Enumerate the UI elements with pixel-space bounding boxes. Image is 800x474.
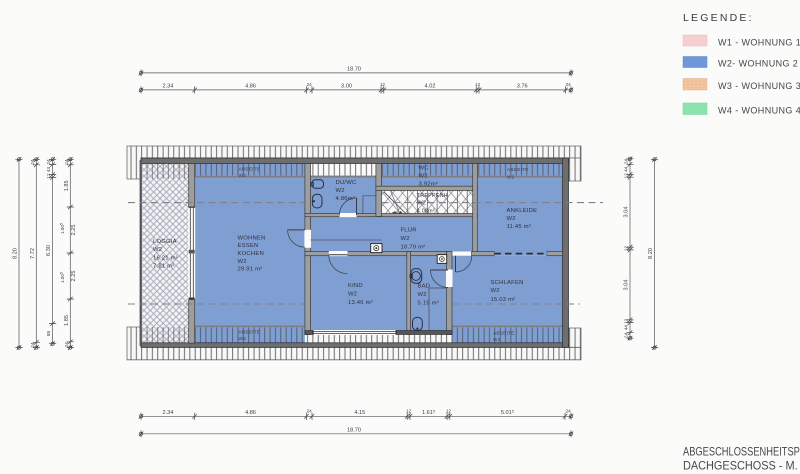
svg-text:13.46 m²: 13.46 m² [348, 300, 373, 306]
svg-text:ABSEITE: ABSEITE [507, 167, 529, 173]
svg-text:W2: W2 [348, 292, 357, 298]
svg-text:3.04: 3.04 [624, 207, 630, 218]
svg-text:24: 24 [566, 82, 572, 87]
svg-text:88: 88 [46, 331, 51, 337]
svg-text:W2: W2 [153, 247, 162, 253]
svg-text:4.86m²: 4.86m² [336, 196, 356, 202]
svg-text:6.30: 6.30 [46, 245, 52, 256]
svg-text:2.25: 2.25 [71, 271, 77, 282]
svg-text:TREPPENH.: TREPPENH. [417, 193, 450, 199]
svg-text:12: 12 [624, 318, 629, 324]
svg-text:3.76: 3.76 [517, 84, 528, 90]
svg-text:12: 12 [380, 82, 386, 87]
svg-text:8.20: 8.20 [13, 248, 19, 259]
svg-text:W2: W2 [239, 336, 247, 342]
svg-text:ABGESCHLOSSENHEITSPLAN: ABGESCHLOSSENHEITSPLAN [683, 445, 800, 459]
svg-text:W2: W2 [418, 292, 427, 298]
svg-text:8.20: 8.20 [648, 248, 654, 259]
svg-text:DACHGESCHOSS - M. 1:100: DACHGESCHOSS - M. 1:100 [683, 459, 800, 473]
svg-text:2.25: 2.25 [71, 225, 77, 236]
svg-text:W2: W2 [419, 173, 428, 179]
svg-text:DU/WC: DU/WC [336, 180, 358, 186]
svg-text:24: 24 [30, 159, 35, 165]
svg-text:SCHLAFEN: SCHLAFEN [491, 280, 524, 286]
svg-text:W2: W2 [238, 259, 247, 265]
svg-text:LEGENDE:: LEGENDE: [683, 12, 754, 24]
svg-text:44: 44 [46, 167, 51, 173]
svg-text:W4 - WOHNUNG 4: W4 - WOHNUNG 4 [718, 106, 800, 116]
svg-text:W1 - WOHNUNG 1 .: W1 - WOHNUNG 1 . [718, 38, 800, 48]
svg-text:W2: W2 [507, 216, 516, 222]
svg-text:BAD: BAD [418, 284, 431, 290]
svg-text:5.15 m²: 5.15 m² [418, 301, 439, 307]
svg-text:12: 12 [406, 408, 412, 413]
svg-text:W2: W2 [401, 236, 410, 242]
svg-text:24: 24 [64, 342, 69, 348]
svg-text:3.92m²: 3.92m² [419, 181, 439, 187]
svg-text:12: 12 [446, 408, 452, 413]
svg-text:15.03 m²: 15.03 m² [491, 297, 516, 303]
svg-text:4.08m²: 4.08m² [417, 209, 435, 215]
svg-text:4.02: 4.02 [425, 84, 436, 90]
svg-text:24: 24 [30, 342, 35, 348]
svg-text:LOGGIA: LOGGIA [153, 239, 177, 245]
svg-text:24: 24 [624, 159, 629, 165]
svg-text:4.86: 4.86 [245, 84, 256, 90]
svg-text:FLUR: FLUR [401, 227, 417, 233]
svg-text:3.00: 3.00 [341, 84, 352, 90]
svg-text:12: 12 [46, 173, 51, 179]
svg-text:11.45 m²: 11.45 m² [507, 224, 531, 230]
svg-text:24: 24 [46, 159, 51, 165]
svg-text:7.81 m²: 7.81 m² [153, 263, 174, 269]
svg-text:24: 24 [64, 159, 69, 165]
svg-text:ANKLEIDE: ANKLEIDE [507, 208, 538, 214]
svg-text:12: 12 [624, 173, 629, 179]
svg-text:16.21 m²: 16.21 m² [153, 255, 178, 261]
svg-text:4.86: 4.86 [245, 410, 256, 416]
svg-text:W2- WOHNUNG 2: W2- WOHNUNG 2 [718, 59, 798, 69]
svg-text:2.34: 2.34 [162, 84, 173, 90]
svg-text:12: 12 [624, 246, 629, 252]
svg-text:ABSEITE: ABSEITE [239, 329, 261, 335]
svg-text:44: 44 [624, 325, 629, 331]
svg-text:ESSEN: ESSEN [238, 243, 259, 249]
svg-text:W2: W2 [418, 201, 427, 207]
svg-text:ABSEITE: ABSEITE [493, 330, 515, 336]
svg-text:3.04: 3.04 [624, 280, 630, 291]
svg-text:44: 44 [624, 166, 629, 172]
svg-text:12: 12 [475, 82, 481, 87]
svg-text:24: 24 [307, 408, 313, 413]
svg-text:24: 24 [307, 82, 313, 87]
svg-text:W3 - WOHNUNG 3: W3 - WOHNUNG 3 [718, 81, 800, 91]
svg-text:2.34: 2.34 [162, 410, 173, 416]
svg-text:4.15: 4.15 [354, 410, 365, 416]
svg-text:18.70: 18.70 [347, 428, 361, 434]
svg-text:KIND: KIND [348, 283, 363, 289]
svg-text:WC: WC [419, 165, 430, 171]
svg-text:ABSEITE: ABSEITE [239, 167, 261, 173]
svg-text:29.91 m²: 29.91 m² [238, 266, 263, 272]
svg-text:1.85: 1.85 [64, 180, 70, 191]
svg-text:7.72: 7.72 [30, 248, 36, 259]
svg-text:WOHNEN: WOHNEN [238, 235, 266, 241]
svg-text:KOCHEN: KOCHEN [238, 251, 264, 257]
svg-text:W2: W2 [491, 288, 500, 294]
svg-text:W2: W2 [239, 173, 247, 179]
svg-text:18.70: 18.70 [347, 67, 361, 73]
svg-text:24: 24 [624, 333, 629, 339]
svg-text:W2: W2 [507, 175, 515, 181]
svg-text:10.79 m²: 10.79 m² [401, 245, 426, 251]
svg-text:1.85: 1.85 [64, 315, 70, 326]
svg-text:W2: W2 [493, 337, 501, 343]
svg-text:W2: W2 [336, 188, 345, 194]
svg-text:24: 24 [566, 408, 572, 413]
